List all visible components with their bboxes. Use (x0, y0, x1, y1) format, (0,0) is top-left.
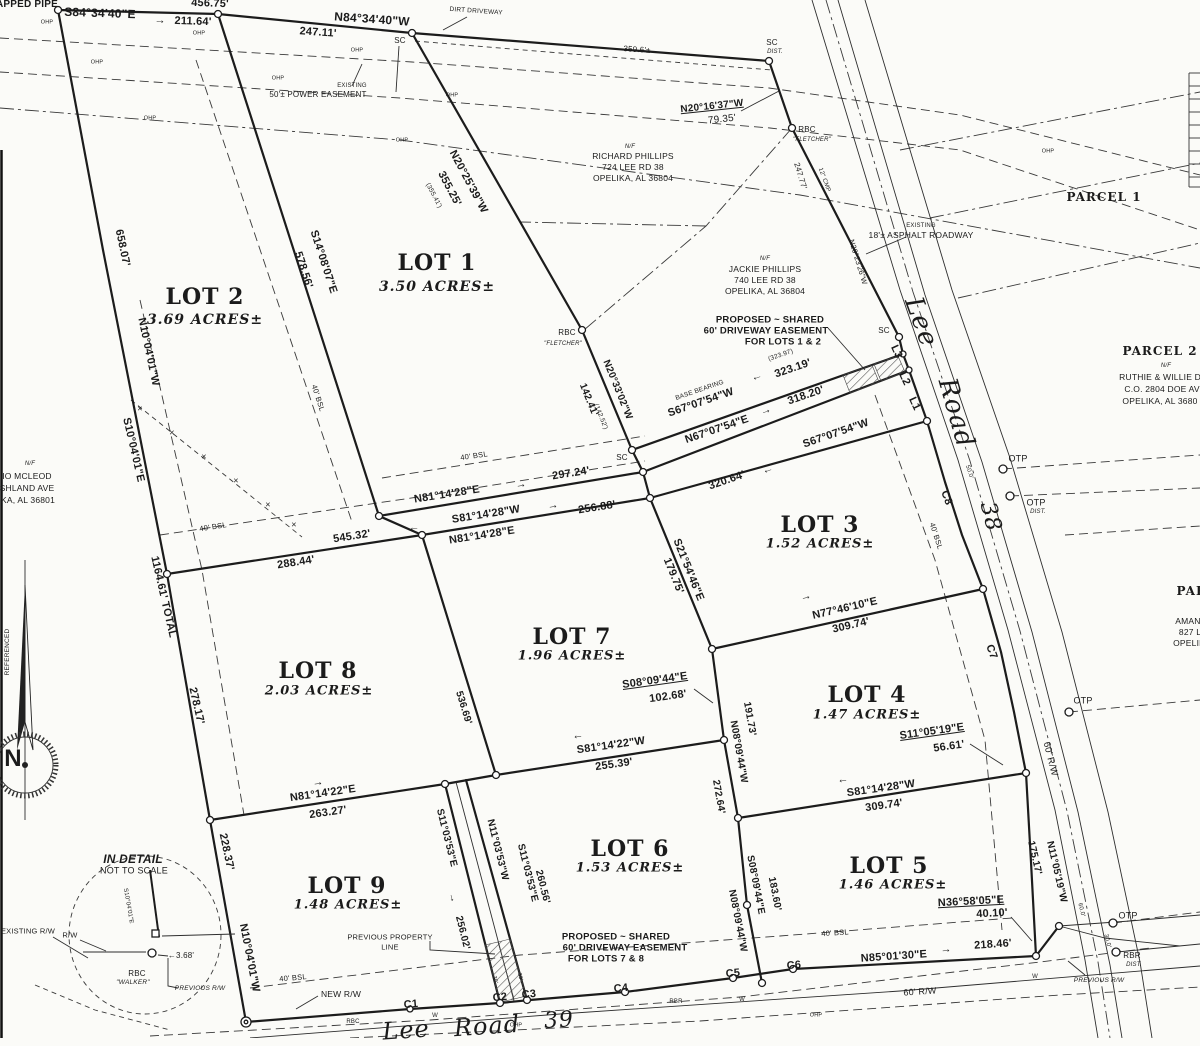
plat-label: 30' (490, 976, 497, 985)
lee-road-39-label: 39 (543, 1009, 574, 1033)
plat-label: N/F (25, 461, 35, 467)
plat-label: 456.75' (191, 0, 229, 10)
plat-label: SC (766, 39, 778, 47)
plat-label: SC (616, 454, 628, 462)
plat-label: × (265, 501, 270, 510)
plat-label: "FLETCHER" (793, 137, 831, 143)
lot-8-area: 2.03 ACRES± (265, 685, 374, 698)
lot-2-label: LOT 2 (166, 286, 245, 308)
plat-label: OPELIKA, AL 36804 (725, 287, 805, 296)
plat-label: C.O. 2804 DOE AVE (1124, 385, 1200, 394)
plat-label: OPELIKA, AL 3680 (1122, 397, 1197, 406)
plat-label: × (201, 453, 206, 462)
plat-label: RICHARD PHILLIPS (592, 152, 674, 161)
arrow-icon: → (940, 944, 952, 956)
plat-label: RUTHIE & WILLIE DA (1119, 373, 1200, 382)
plat-map: APPED PIPE456.75'S84°34'40"E→211.64'N84°… (0, 0, 1200, 1038)
plat-label: SC (394, 37, 406, 45)
plat-label: OHP (351, 48, 364, 54)
lot-8-label: LOT 8 (279, 660, 358, 682)
plat-label: 30' (515, 973, 522, 982)
plat-label: OTP (1008, 455, 1027, 464)
plat-label: REFERENCED (5, 629, 12, 676)
plat-label: PREVIOUS R/W (1074, 978, 1124, 985)
setback-lines (131, 60, 1012, 988)
plat-label: PROPOSED ~ SHARED (716, 315, 824, 325)
plat-label: N/F (760, 256, 770, 262)
plat-label: PROPOSED ~ SHARED (562, 932, 670, 942)
plat-label: OPELIKA, AL 36804 (593, 174, 673, 183)
plat-label: S84°34'40"E (64, 6, 136, 20)
plat-label: 211.64' (174, 16, 211, 28)
plat-label: OHP (193, 31, 206, 37)
lot-3-label: LOT 3 (781, 514, 860, 536)
north-arrow-icon (0, 560, 56, 820)
plat-label: OTP (1073, 697, 1092, 706)
plat-label: 18'± ASPHALT ROADWAY (869, 231, 974, 240)
plat-label: W (432, 1013, 438, 1019)
lot-1-label: LOT 1 (398, 252, 477, 274)
plat-label: 740 LEE RD 38 (734, 276, 796, 285)
curve-c6-label: C6 (786, 960, 801, 972)
parcel-1-label: PARCEL 1 (1066, 191, 1141, 203)
plat-label: JACKIE PHILLIPS (729, 265, 801, 274)
plat-label: PREVIOUS PROPERTY (347, 933, 432, 941)
plat-label: OTP (1118, 912, 1137, 921)
plat-label: RBR (1123, 952, 1141, 960)
plat-label: AMANDA (1175, 617, 1200, 626)
plat-label: OHP (810, 1013, 823, 1019)
plat-label: EXISTING (337, 83, 367, 89)
plat-label: 50'± POWER EASEMENT (269, 91, 366, 99)
plat-label: 60' DRIVEWAY EASEMENT (704, 326, 829, 336)
curve-c3-label: C3 (521, 989, 536, 1001)
parcel-2-label: PARCEL 2 (1122, 345, 1197, 357)
leader-lines (53, 17, 1085, 1009)
arrow-icon: → (515, 479, 528, 492)
plat-label: OHP (41, 20, 54, 26)
plat-label: × (169, 429, 174, 438)
plat-label: EXISTING (906, 223, 936, 229)
lot-6-area: 1.53 ACRES± (576, 862, 685, 875)
lot-7-area: 1.96 ACRES± (518, 650, 627, 663)
plat-label: OPELIKA (1173, 639, 1200, 648)
arrow-icon: → (547, 500, 560, 513)
plat-label: "WALKER" (116, 980, 150, 987)
plat-label: 60' DRIVEWAY EASEMENT (563, 943, 688, 953)
lee-road-39-label: Lee (382, 1016, 431, 1043)
plat-label: DIST. (1030, 509, 1046, 515)
lot-1-area: 3.50 ACRES± (379, 280, 495, 294)
detail-subtitle: NOT TO SCALE (100, 867, 168, 876)
lot-3-area: 1.52 ACRES± (766, 538, 875, 551)
plat-label: ←3.68' (168, 952, 194, 960)
lot-4-area: 1.47 ACRES± (813, 709, 922, 722)
plat-label: OHP (272, 76, 285, 82)
arrow-icon: ← (408, 522, 421, 535)
plat-label: KA, AL 36801 (1, 496, 55, 505)
plat-label: OHP (396, 138, 409, 144)
plat-label: N/F (625, 144, 635, 150)
curve-c1-label: C1 (403, 999, 418, 1011)
plat-label: RBC (798, 126, 816, 134)
plat-label: RBC (128, 970, 146, 978)
plat-label: N/F (1161, 363, 1171, 369)
parcel-3-label: PARC (1177, 585, 1200, 597)
plat-label: "FLETCHER" (544, 341, 582, 347)
plat-label: DIST. (767, 49, 783, 55)
lot-6-label: LOT 6 (591, 838, 670, 860)
plat-label: IO MCLEOD (2, 472, 52, 481)
lot-5-label: LOT 5 (850, 855, 929, 877)
curve-c5-label: C5 (725, 968, 740, 980)
plat-label: × (291, 521, 296, 530)
plat-label: W (1032, 974, 1038, 980)
plat-label: 724 LEE RD 38 (602, 163, 664, 172)
plat-label: OHP (510, 1023, 523, 1029)
detail-title: IN DETAIL (103, 853, 163, 865)
plat-label: W (739, 997, 745, 1003)
lee-road-38-label: 38 (976, 500, 1005, 534)
plat-label: FOR LOTS 7 & 8 (568, 954, 644, 964)
plat-label: RBR (669, 999, 682, 1005)
plat-label: DIST. (1126, 962, 1142, 968)
plat-label: 40.10' (976, 908, 1008, 921)
capped-pipe-label: APPED PIPE (0, 0, 58, 10)
lot-7-label: LOT 7 (533, 626, 612, 648)
plat-label: NEW R/W (321, 990, 361, 999)
plat-label: RBC (558, 329, 576, 337)
plat-label: × (233, 477, 238, 486)
plat-label: 40' BSL (821, 928, 849, 937)
lot-9-label: LOT 9 (308, 875, 387, 897)
plat-label: OHP (1042, 149, 1055, 155)
lot-4-label: LOT 4 (828, 684, 907, 706)
lot-5-area: 1.46 ACRES± (839, 879, 948, 892)
plat-label: SHLAND AVE (0, 484, 54, 493)
plat-label: SC (878, 327, 890, 335)
plat-label: OHP (144, 116, 157, 122)
plat-label: EXISTING R/W (1, 927, 55, 935)
plat-label: LINE (381, 943, 398, 951)
arrow-icon: ← (572, 730, 585, 742)
plat-label: OHP (446, 93, 459, 99)
lot-2-area: 3.69 ACRES± (147, 313, 263, 327)
plat-label: 827 LE (1179, 628, 1200, 637)
north-arrow-label: N (4, 747, 22, 771)
plat-label: PREVIOUS R/W (175, 986, 225, 993)
lot-9-area: 1.48 ACRES± (294, 899, 403, 912)
arrow-icon: → (154, 15, 166, 26)
plat-label: FOR LOTS 1 & 2 (745, 337, 821, 347)
curve-table-fragment (1189, 73, 1200, 187)
plat-label: × (137, 405, 142, 414)
arrow-icon: ← (837, 774, 850, 786)
plat-label: RBC (346, 1019, 359, 1025)
curve-c4-label: C4 (613, 983, 628, 995)
curve-c2-label: C2 (492, 992, 507, 1004)
plat-label: OHP (91, 60, 104, 66)
plat-label: OTP (1026, 499, 1045, 508)
plat-label: R/W (62, 931, 77, 939)
